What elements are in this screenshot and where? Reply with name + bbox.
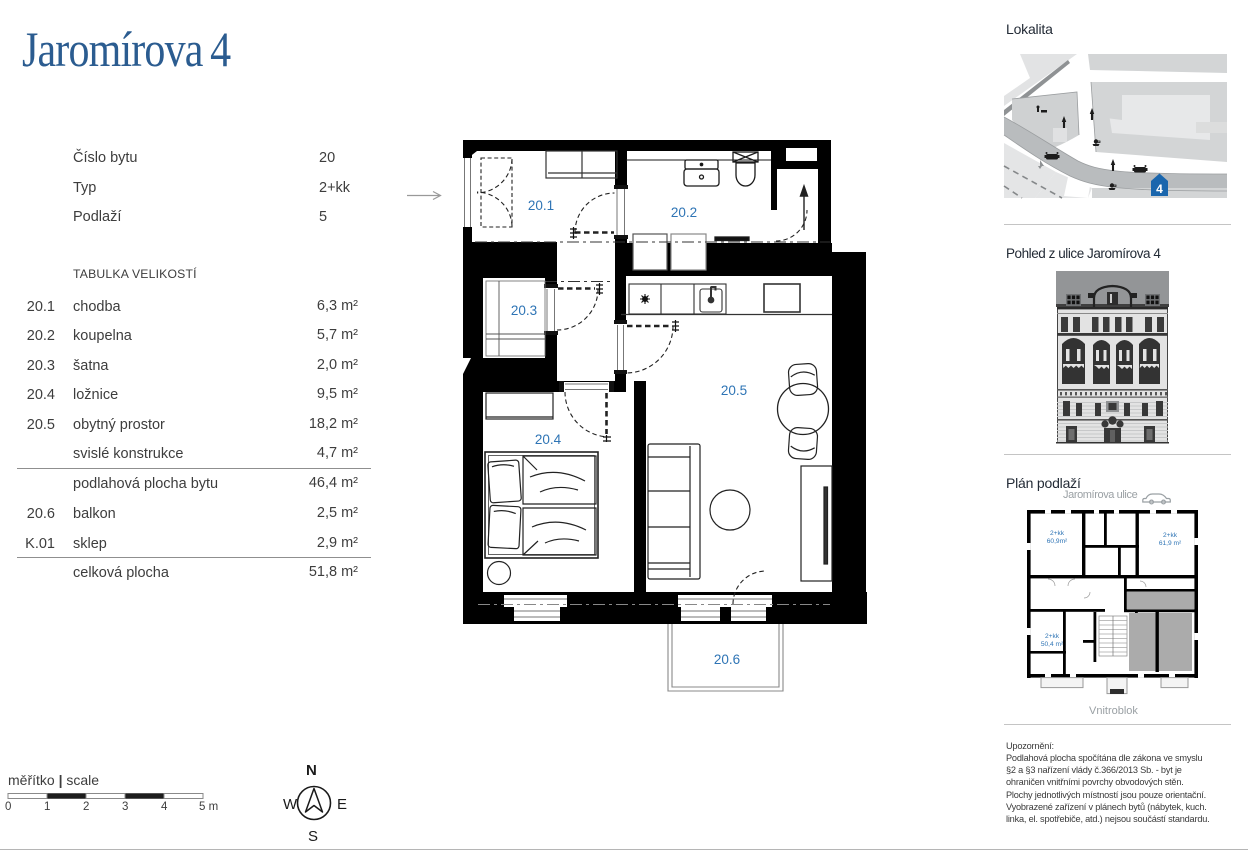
svg-text:20.5: 20.5 [721, 383, 747, 398]
svg-text:2+kk: 2+kk [1045, 633, 1060, 640]
svg-text:60,9m²: 60,9m² [1047, 538, 1068, 545]
svg-text:20.4: 20.4 [535, 432, 562, 447]
svg-text:20.3: 20.3 [511, 303, 537, 318]
svg-text:4: 4 [1156, 182, 1163, 196]
svg-text:2+kk: 2+kk [1050, 530, 1065, 537]
svg-text:20.2: 20.2 [671, 205, 697, 220]
svg-text:61,9 m²: 61,9 m² [1159, 540, 1182, 547]
svg-text:20.1: 20.1 [528, 198, 554, 213]
svg-text:50,4 m²: 50,4 m² [1041, 641, 1064, 648]
svg-text:2+kk: 2+kk [1163, 532, 1178, 539]
svg-text:20.6: 20.6 [714, 652, 740, 667]
